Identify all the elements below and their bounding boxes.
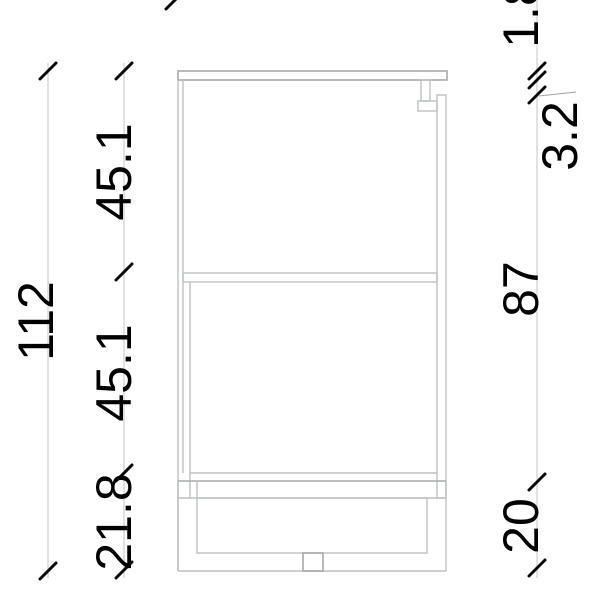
bottom-panel [178,473,446,481]
hanging-rail-bracket [421,80,430,101]
hanging-rail [418,80,437,111]
dim-label-lower-compartment: 45.1 [86,324,142,421]
dim-label-overall-height: 112 [8,281,64,361]
plinth-base [178,481,446,571]
toe-kick-recess [197,498,427,553]
dim-label-rail-gap: 3.2 [532,101,588,171]
cabinet-outline [178,71,447,571]
dim-leader-3-2 [539,92,576,96]
dim-label-upper-compartment: 45.1 [86,123,142,220]
cabinet-section-drawing: 112 45.1 45.1 21.8 1.8 3.2 87 20 [0,0,600,600]
middle-shelf [183,273,437,282]
center-foot [303,553,323,571]
drawing-canvas: 112 45.1 45.1 21.8 1.8 3.2 87 20 [0,0,600,600]
hanging-rail-profile [418,101,437,111]
dim-label-top-panel-thickness: 1.8 [493,0,549,48]
right-side-panel [437,95,446,498]
dim-label-bottom-zone: 21.8 [86,473,142,570]
dim-label-base-height: 20 [493,498,549,554]
top-panel [178,71,447,80]
dim-label-side-panel-height: 87 [493,261,549,317]
cropped-top-tick [166,0,182,9]
